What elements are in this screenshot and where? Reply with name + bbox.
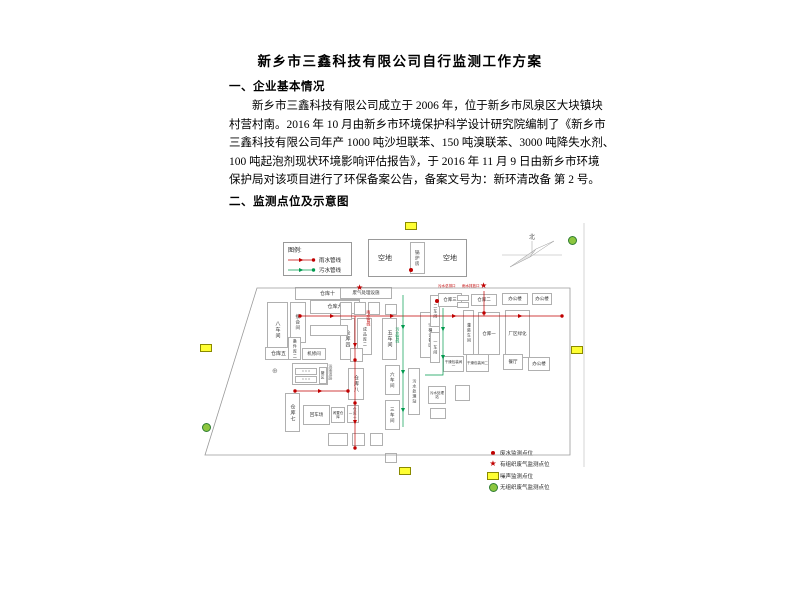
wastewater-monitoring-point [435, 299, 439, 303]
body-paragraph: 新乡市三鑫科技有限公司成立于 2006 年，位于新乡市凤泉区大块镇块 村营村南。… [229, 97, 574, 190]
small-structure-box [385, 304, 397, 315]
small-structure-box [370, 433, 383, 446]
wastewater-monitoring-point [409, 268, 413, 272]
stack-gas-monitoring-point: ★ [480, 282, 487, 290]
legend-row-stack-gas: ★ 有组织废气监测点位 [486, 459, 550, 471]
small-structure-box [328, 433, 348, 446]
building-box: 仓库八 [348, 368, 364, 400]
legend-row-rainwater: 雨水管线 [288, 255, 351, 265]
building-box: 仓库十一 [347, 405, 359, 423]
paragraph-line: 三鑫科技有限公司年产 1000 吨沙坦联苯、150 吨溴联苯、3000 吨降失水… [229, 134, 574, 153]
noise-monitoring-point [571, 346, 583, 354]
small-structure-box [430, 408, 446, 419]
sewage-line-icon [288, 266, 316, 274]
legend-row-noise: 噪声监测点位 [486, 470, 550, 482]
noise-point-icon [487, 472, 499, 480]
paragraph-line: 新乡市三鑫科技有限公司成立于 2006 年，位于新乡市凤泉区大块镇块 [229, 97, 574, 116]
annotation-label: 雨水管线 [366, 310, 370, 326]
building-box: 仓库九 [310, 300, 360, 314]
building-box: 废气处理设施 [340, 287, 392, 299]
legend-label: 无组织废气监测点位 [500, 483, 550, 491]
building-box: 干燥包装间二 [466, 354, 489, 372]
monitoring-point-legend: 废水监测点位 ★ 有组织废气监测点位 噪声监测点位 无组织废气监测点位 [486, 447, 550, 493]
building-box: ○ ○ ○ [295, 376, 317, 383]
building-box: 罐区 [319, 367, 327, 384]
section-heading-monitoring-points: 二、监测点位及示意图 [229, 193, 349, 209]
paragraph-line: 保护局对该项目进行了环保备案公告，备案文号为：新环清改备 第 2 号。 [229, 171, 574, 190]
annotation-label: 污水管线 [395, 327, 399, 343]
legend-label: 废水监测点位 [500, 449, 533, 457]
building-box: 一车间 [430, 332, 440, 363]
fugitive-gas-monitoring-point [568, 236, 577, 245]
empty-lot-label: 空地 [378, 253, 392, 263]
wastewater-point-icon [491, 451, 495, 455]
building-box: 污水处理站 [428, 386, 446, 404]
document-page: 新乡市三鑫科技有限公司自行监测工作方案 一、企业基本情况 新乡市三鑫科技有限公司… [0, 0, 800, 600]
building-box: 六车间 [385, 365, 400, 395]
small-structure-box [352, 433, 365, 446]
building-box: ○ ○ ○ [295, 368, 317, 375]
building-box: 机修间 [302, 348, 326, 360]
building-box: 干燥包装间一 [443, 356, 464, 372]
empty-lot-block: 空地 锅炉房 空地 [368, 239, 467, 277]
empty-lot-label: 空地 [443, 253, 457, 263]
legend-row-sewage: 污水管线 [288, 265, 351, 275]
small-structure-box [354, 302, 366, 315]
building-box: 闲置仓库 [331, 407, 345, 423]
north-label: 北 [529, 233, 535, 241]
fugitive-gas-point-icon [489, 483, 498, 492]
annotation-label: 污水总排口 [438, 285, 456, 289]
annotation-label: 雨水排放口 [462, 285, 480, 289]
north-compass-icon: 北 [500, 229, 566, 275]
building-box: 回车场 [303, 405, 330, 425]
building-box: 三车间 [385, 400, 400, 430]
annotation-label: ⊕ [272, 368, 278, 376]
paragraph-line: 村营村南。2016 年 10 月由新乡市环境保护科学设计研究院编制了《新乡市 [229, 116, 574, 135]
building-box: 仓库一 [478, 312, 500, 355]
pipeline-legend: 图例: 雨水管线 污水管线 [283, 242, 352, 276]
building-box: 厂区绿化 [505, 310, 530, 358]
legend-label: 雨水管线 [319, 256, 341, 264]
rainwater-line-icon [288, 256, 316, 264]
legend-row-fugitive-gas: 无组织废气监测点位 [486, 482, 550, 494]
site-layout-diagram: 图例: 雨水管线 污水管线 空地 锅炉房 空地 北 废水监 [200, 215, 605, 510]
building-box: 办公楼 [528, 357, 550, 371]
building-box: 仓库七 [285, 393, 300, 432]
paragraph-line: 100 吨起泡剂现状环境影响评估报告》，于 2016 年 11 月 9 日由新乡… [229, 153, 574, 172]
small-structure-box [385, 453, 397, 463]
section-heading-company-info: 一、企业基本情况 [229, 78, 325, 94]
noise-monitoring-point [200, 344, 212, 352]
small-structure-box [457, 295, 469, 301]
building-box: 备件库二 [288, 337, 301, 360]
building-box: 办公楼 [502, 293, 528, 305]
noise-monitoring-point [405, 222, 417, 230]
small-structure-box [340, 302, 352, 320]
small-structure-box [455, 385, 470, 401]
small-structure-box [350, 348, 363, 362]
building-box: 污水处理站 [408, 368, 420, 415]
legend-label: 有组织废气监测点位 [500, 460, 550, 468]
stack-gas-monitoring-point: ★ [356, 284, 363, 292]
page-title: 新乡市三鑫科技有限公司自行监测工作方案 [0, 50, 800, 70]
fugitive-gas-monitoring-point [202, 423, 211, 432]
small-structure-box [310, 325, 348, 336]
legend-label: 噪声监测点位 [500, 472, 533, 480]
building-box: 办公楼 [532, 293, 552, 305]
building-box: 餐厅 [503, 354, 523, 370]
legend-title: 图例: [288, 245, 351, 254]
legend-row-wastewater: 废水监测点位 [486, 447, 550, 459]
small-structure-box [457, 302, 469, 308]
annotation-label: 运输道路 [328, 364, 332, 380]
noise-monitoring-point [399, 467, 411, 475]
legend-label: 污水管线 [319, 266, 341, 274]
building-box: 仓库二 [471, 294, 497, 306]
building-box: 灌装车间 [463, 310, 474, 355]
stack-gas-point-icon: ★ [489, 460, 496, 468]
